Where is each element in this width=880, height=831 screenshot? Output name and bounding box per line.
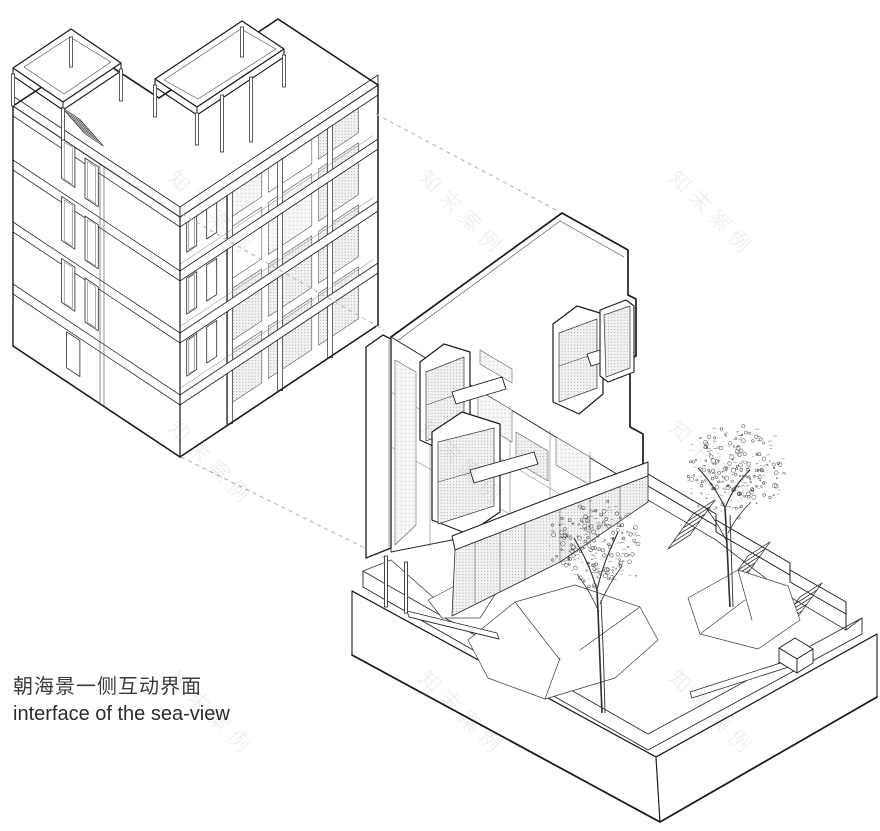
caption: 朝海景一侧互动界面 interface of the sea-view xyxy=(13,674,230,728)
bay-window-4 xyxy=(600,300,634,382)
architectural-diagram-page: 知末案例知末案例知末案例知末案例知末案例知末案例知末案例知末案例知末案例 朝海景… xyxy=(0,0,880,831)
projection-line-bottom xyxy=(181,457,387,559)
left-building-axon xyxy=(11,19,378,457)
projection-line-top xyxy=(376,114,560,212)
caption-english: interface of the sea-view xyxy=(13,701,230,728)
caption-chinese: 朝海景一侧互动界面 xyxy=(13,674,230,701)
